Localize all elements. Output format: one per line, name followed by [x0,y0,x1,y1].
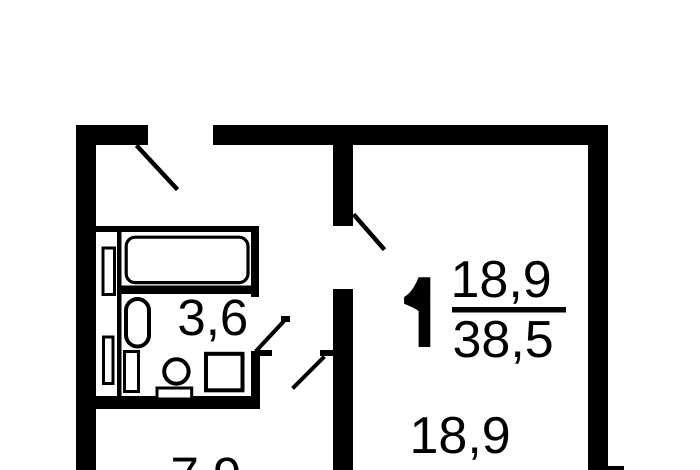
svg-text:7,9: 7,9 [171,447,242,470]
svg-text:18,9: 18,9 [451,251,552,309]
svg-text:38,5: 38,5 [453,311,554,369]
svg-text:18,9: 18,9 [410,407,511,465]
svg-text:3,6: 3,6 [177,289,248,346]
